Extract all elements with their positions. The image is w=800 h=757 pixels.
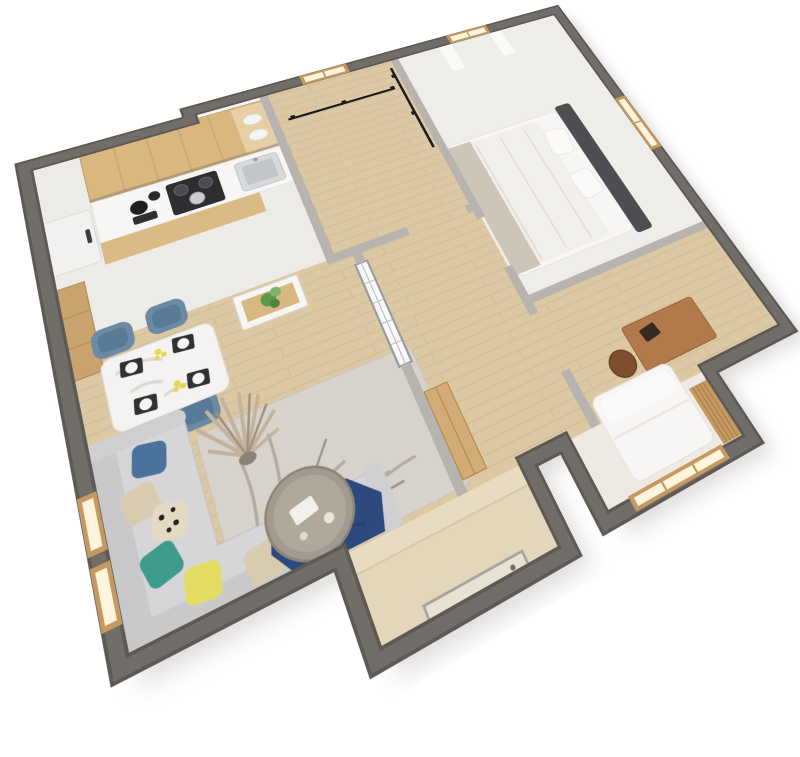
floorplan-svg <box>9 0 800 757</box>
building-perspective-wrapper <box>9 0 800 757</box>
floorplan-canvas <box>0 0 800 757</box>
